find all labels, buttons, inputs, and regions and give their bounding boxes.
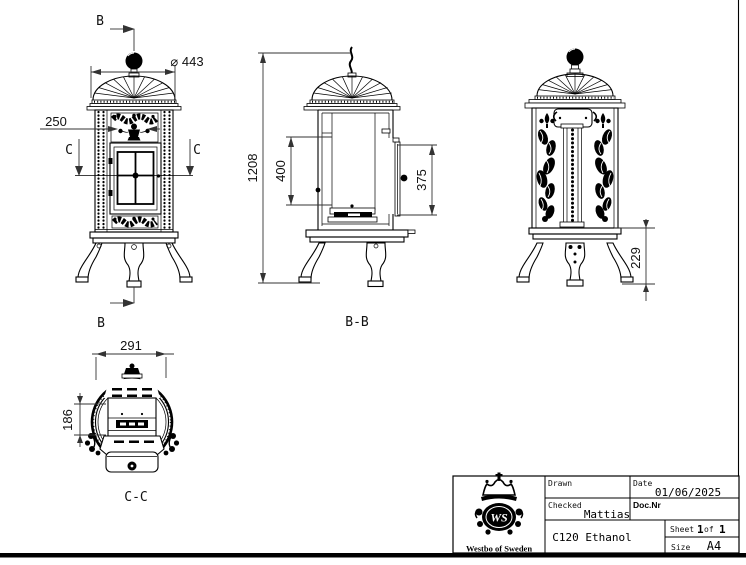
date-label: Date: [633, 479, 652, 488]
section-c-markers: C C: [65, 139, 201, 176]
sheet-of: of: [704, 525, 714, 534]
checked-label: Checked: [548, 501, 582, 510]
flame-finial: [350, 47, 353, 75]
scroll-panel-left: [535, 112, 558, 222]
ball-finial-side: [567, 49, 584, 66]
door-hinge-bottom: [109, 190, 113, 196]
center-bead-column: [560, 124, 584, 227]
company-name: Westbo of Sweden: [466, 544, 532, 554]
cad-drawing-page: B: [0, 0, 746, 565]
ash-lip: [408, 230, 415, 234]
door-handle: [157, 174, 160, 177]
checked-value: Mattias: [584, 508, 630, 521]
sheet-total: 1: [719, 523, 726, 536]
side-view: 229: [517, 49, 655, 302]
cornice: [90, 104, 178, 107]
section-label-b-bottom: B: [97, 316, 105, 331]
scroll-panel-right: [593, 112, 616, 222]
title-block: Drawn Date 01/06/2025 Checked Mattias Do…: [453, 473, 739, 554]
svg-text:186: 186: [60, 409, 75, 431]
burner-section: [318, 204, 393, 230]
door-knob-section: [401, 175, 408, 182]
drawing-canvas: B: [0, 0, 746, 565]
svg-text:⌀ 443: ⌀ 443: [170, 54, 203, 69]
docnr-label: Doc.Nr: [633, 500, 662, 510]
section-arrow-b-top: [123, 25, 135, 33]
base-plate: [90, 232, 178, 238]
section-label-c-left: C: [65, 143, 73, 158]
sheet-label: Sheet: [670, 525, 694, 534]
section-arrow-b-bottom: [123, 299, 135, 307]
dim-total-height: 1208: [245, 53, 351, 283]
garland-ornament: [113, 117, 156, 122]
view-label-cc: C-C: [124, 490, 147, 505]
front-legs: [76, 243, 192, 287]
svg-text:375: 375: [414, 169, 429, 191]
door-hinge-top: [109, 158, 113, 164]
logo-monogram: WS: [490, 511, 508, 525]
svg-text:1208: 1208: [245, 154, 260, 183]
section-label-c-right: C: [193, 143, 201, 158]
svg-text:400: 400: [273, 160, 288, 182]
page-bottom-border: [0, 553, 746, 558]
section-view-cc: 291 186 C-C: [60, 338, 179, 505]
drawn-label: Drawn: [548, 479, 572, 488]
open-door-section: [393, 138, 407, 216]
section-view-bb: 1208 400 375 B-B: [245, 47, 437, 330]
date-value: 01/06/2025: [655, 486, 721, 499]
dim-opening-height: 400: [273, 137, 332, 205]
svg-text:291: 291: [120, 338, 142, 353]
size-value: A4: [707, 539, 721, 553]
dim-diameter: ⌀ 443: [91, 54, 204, 98]
size-label: Size: [671, 543, 690, 552]
section-legs: [299, 243, 386, 287]
urn-ornament: [118, 124, 149, 141]
product-title: C120 Ethanol: [552, 531, 631, 544]
ball-finial: [126, 53, 143, 70]
section-label-b-top: B: [96, 14, 104, 29]
sheet-num: 1: [697, 523, 704, 536]
svg-text:229: 229: [628, 247, 643, 269]
dome-ribs: [94, 76, 173, 98]
view-label-bb: B-B: [345, 315, 369, 330]
front-view: B: [40, 14, 204, 331]
svg-text:250: 250: [45, 114, 67, 129]
side-legs: [517, 243, 633, 286]
